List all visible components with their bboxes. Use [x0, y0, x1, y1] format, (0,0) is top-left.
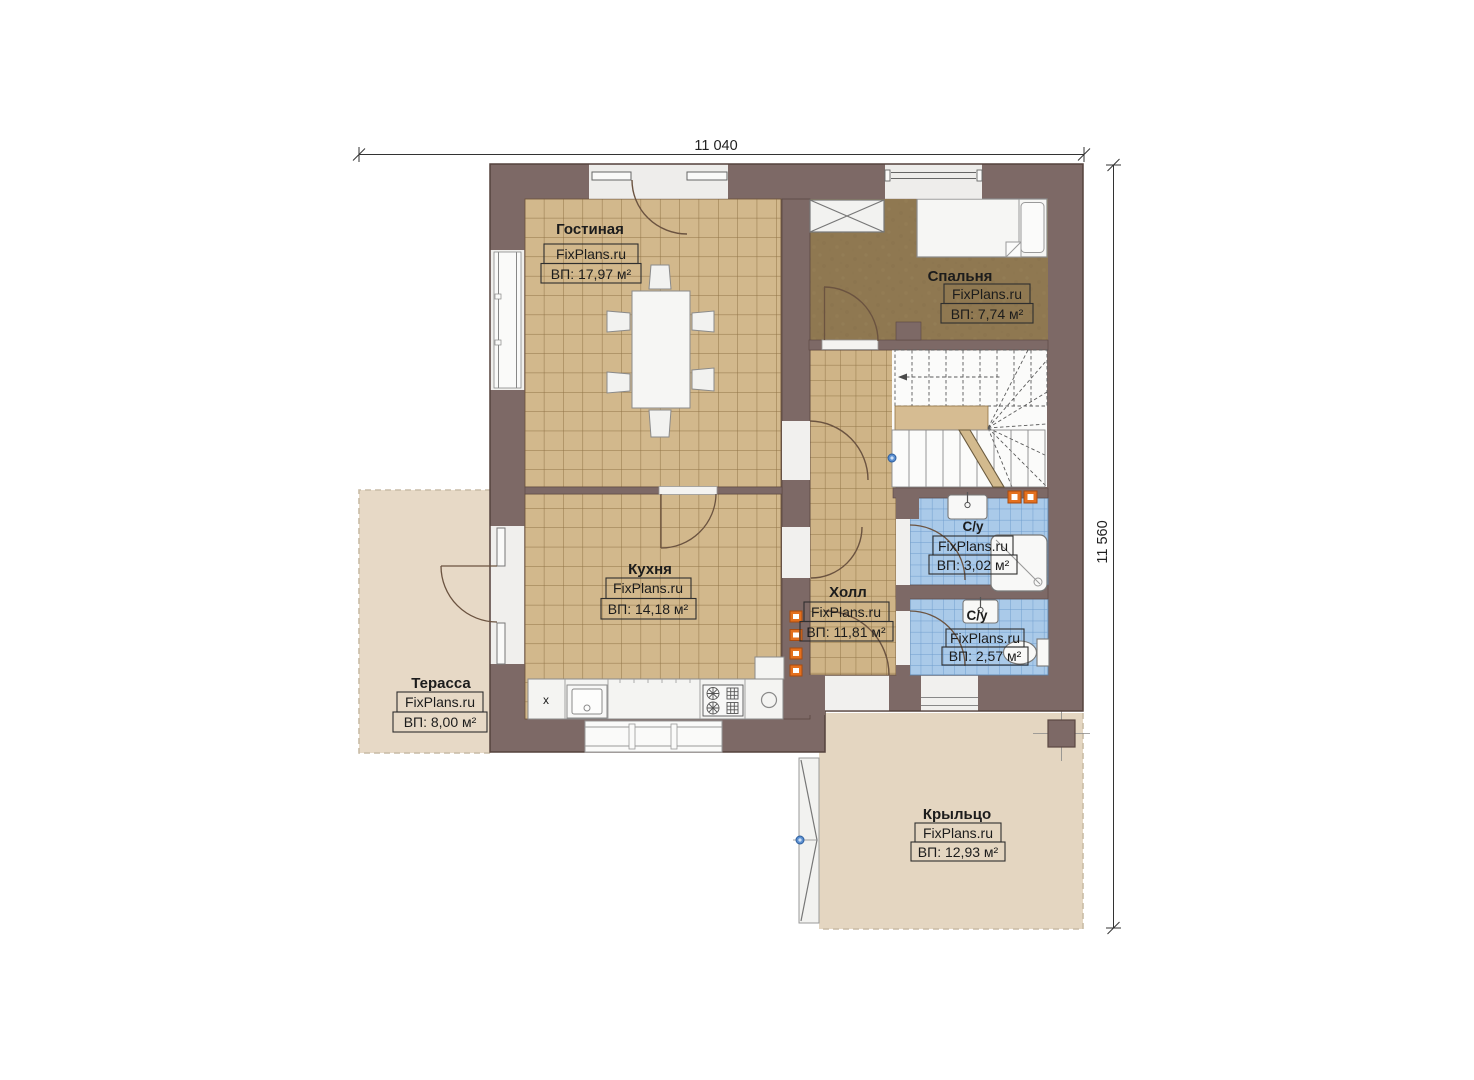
- svg-text:x: x: [543, 693, 549, 707]
- svg-text:FixPlans.ru: FixPlans.ru: [613, 580, 683, 596]
- svg-text:FixPlans.ru: FixPlans.ru: [923, 825, 993, 841]
- svg-text:Холл: Холл: [829, 584, 867, 601]
- svg-text:11 040: 11 040: [694, 138, 737, 154]
- svg-text:Кухня: Кухня: [628, 561, 672, 578]
- svg-text:ВП: 7,74 м²: ВП: 7,74 м²: [951, 306, 1024, 322]
- svg-text:FixPlans.ru: FixPlans.ru: [952, 286, 1022, 302]
- svg-text:Гостиная: Гостиная: [556, 221, 624, 238]
- svg-text:FixPlans.ru: FixPlans.ru: [405, 694, 475, 710]
- svg-text:FixPlans.ru: FixPlans.ru: [938, 538, 1008, 554]
- svg-text:ВП: 2,57 м²: ВП: 2,57 м²: [949, 648, 1022, 664]
- svg-text:ВП: 8,00 м²: ВП: 8,00 м²: [404, 714, 477, 730]
- svg-text:С/у: С/у: [962, 519, 984, 534]
- svg-text:ВП: 12,93 м²: ВП: 12,93 м²: [918, 844, 999, 860]
- svg-text:ВП: 17,97 м²: ВП: 17,97 м²: [551, 266, 632, 282]
- svg-text:11 560: 11 560: [1095, 520, 1111, 563]
- svg-text:С/у: С/у: [966, 608, 988, 623]
- svg-text:FixPlans.ru: FixPlans.ru: [950, 630, 1020, 646]
- svg-text:FixPlans.ru: FixPlans.ru: [556, 246, 626, 262]
- svg-text:ВП: 11,81 м²: ВП: 11,81 м²: [806, 624, 886, 640]
- svg-text:ВП: 14,18 м²: ВП: 14,18 м²: [608, 601, 689, 617]
- svg-text:Терасса: Терасса: [411, 675, 471, 692]
- svg-text:FixPlans.ru: FixPlans.ru: [811, 604, 881, 620]
- svg-text:Крыльцо: Крыльцо: [923, 806, 991, 823]
- svg-text:Спальня: Спальня: [928, 268, 993, 285]
- svg-text:ВП: 3,02 м²: ВП: 3,02 м²: [937, 557, 1010, 573]
